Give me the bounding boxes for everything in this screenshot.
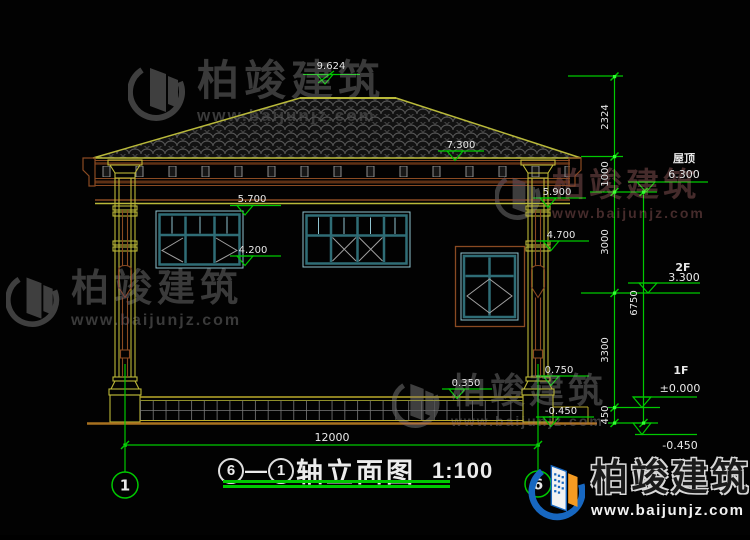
hip-roof: [93, 98, 581, 158]
elev-pedestal: 0.750: [545, 365, 574, 376]
elev-terrace: 0.350: [452, 378, 481, 389]
elev-lintel-2f: 5.700: [238, 194, 267, 205]
window-2f-right: [303, 212, 410, 267]
title-underline-1: [223, 480, 450, 483]
elev-eave: 7.300: [447, 140, 476, 151]
brand-name: 柏竣建筑: [591, 458, 750, 499]
level-1f-label: 1F: [673, 364, 688, 377]
dim-12000: 12000: [315, 431, 350, 444]
chain-labels: 2324 1000 3000 3300 450 6750: [600, 104, 640, 424]
cornice-return-right: [569, 158, 581, 186]
level-1f-value: ±0.000: [660, 382, 701, 395]
level-roof-label: 屋顶: [673, 152, 695, 165]
dim-1000: 1000: [600, 161, 611, 186]
marker-ridge: [303, 71, 360, 84]
elev-sill-2f: 4.200: [239, 245, 268, 256]
dentil-band: [99, 166, 570, 177]
elev-ground-left: -0.450: [545, 406, 577, 417]
title-underline-2: [223, 485, 450, 488]
level-texts: 屋顶 6.300 2F 3.300 1F ±0.000 -0.450: [660, 152, 701, 452]
cad-elevation-canvas: 9.624 7.300 5.700 4.200 5.900 4.700 0.75…: [0, 0, 750, 535]
window-stair: [456, 247, 525, 327]
brand-logo-icon: [527, 458, 585, 524]
level-markers: [581, 182, 708, 435]
downspout-left: [119, 210, 132, 377]
dim-450: 450: [600, 405, 611, 424]
brand-url: www.baijunjz.com: [591, 502, 750, 519]
dim-3000: 3000: [600, 229, 611, 254]
cornice-return-left: [83, 158, 95, 186]
level-1f: [608, 397, 697, 408]
brand-logo: 柏竣建筑 www.baijunjz.com: [527, 458, 750, 524]
elev-ring: 4.700: [547, 230, 576, 241]
window-2f-left: [156, 211, 243, 268]
level-2f: [581, 283, 700, 293]
elev-ridge: 9.624: [317, 61, 346, 72]
dim-2324: 2324: [600, 104, 611, 129]
plinth: [87, 397, 597, 424]
level-basement-value: -0.450: [662, 439, 697, 452]
dim-6750: 6750: [629, 290, 640, 315]
dim-3300: 3300: [600, 337, 611, 362]
elev-capital: 5.900: [543, 187, 572, 198]
level-2f-value: 3.300: [668, 271, 700, 284]
downspout-right: [532, 210, 545, 377]
title-dash: —: [245, 460, 267, 482]
eave-cornice: [83, 158, 581, 204]
level-basement: [608, 423, 697, 435]
axis-left-number: 1: [120, 477, 130, 495]
level-roof-value: 6.300: [668, 168, 700, 181]
